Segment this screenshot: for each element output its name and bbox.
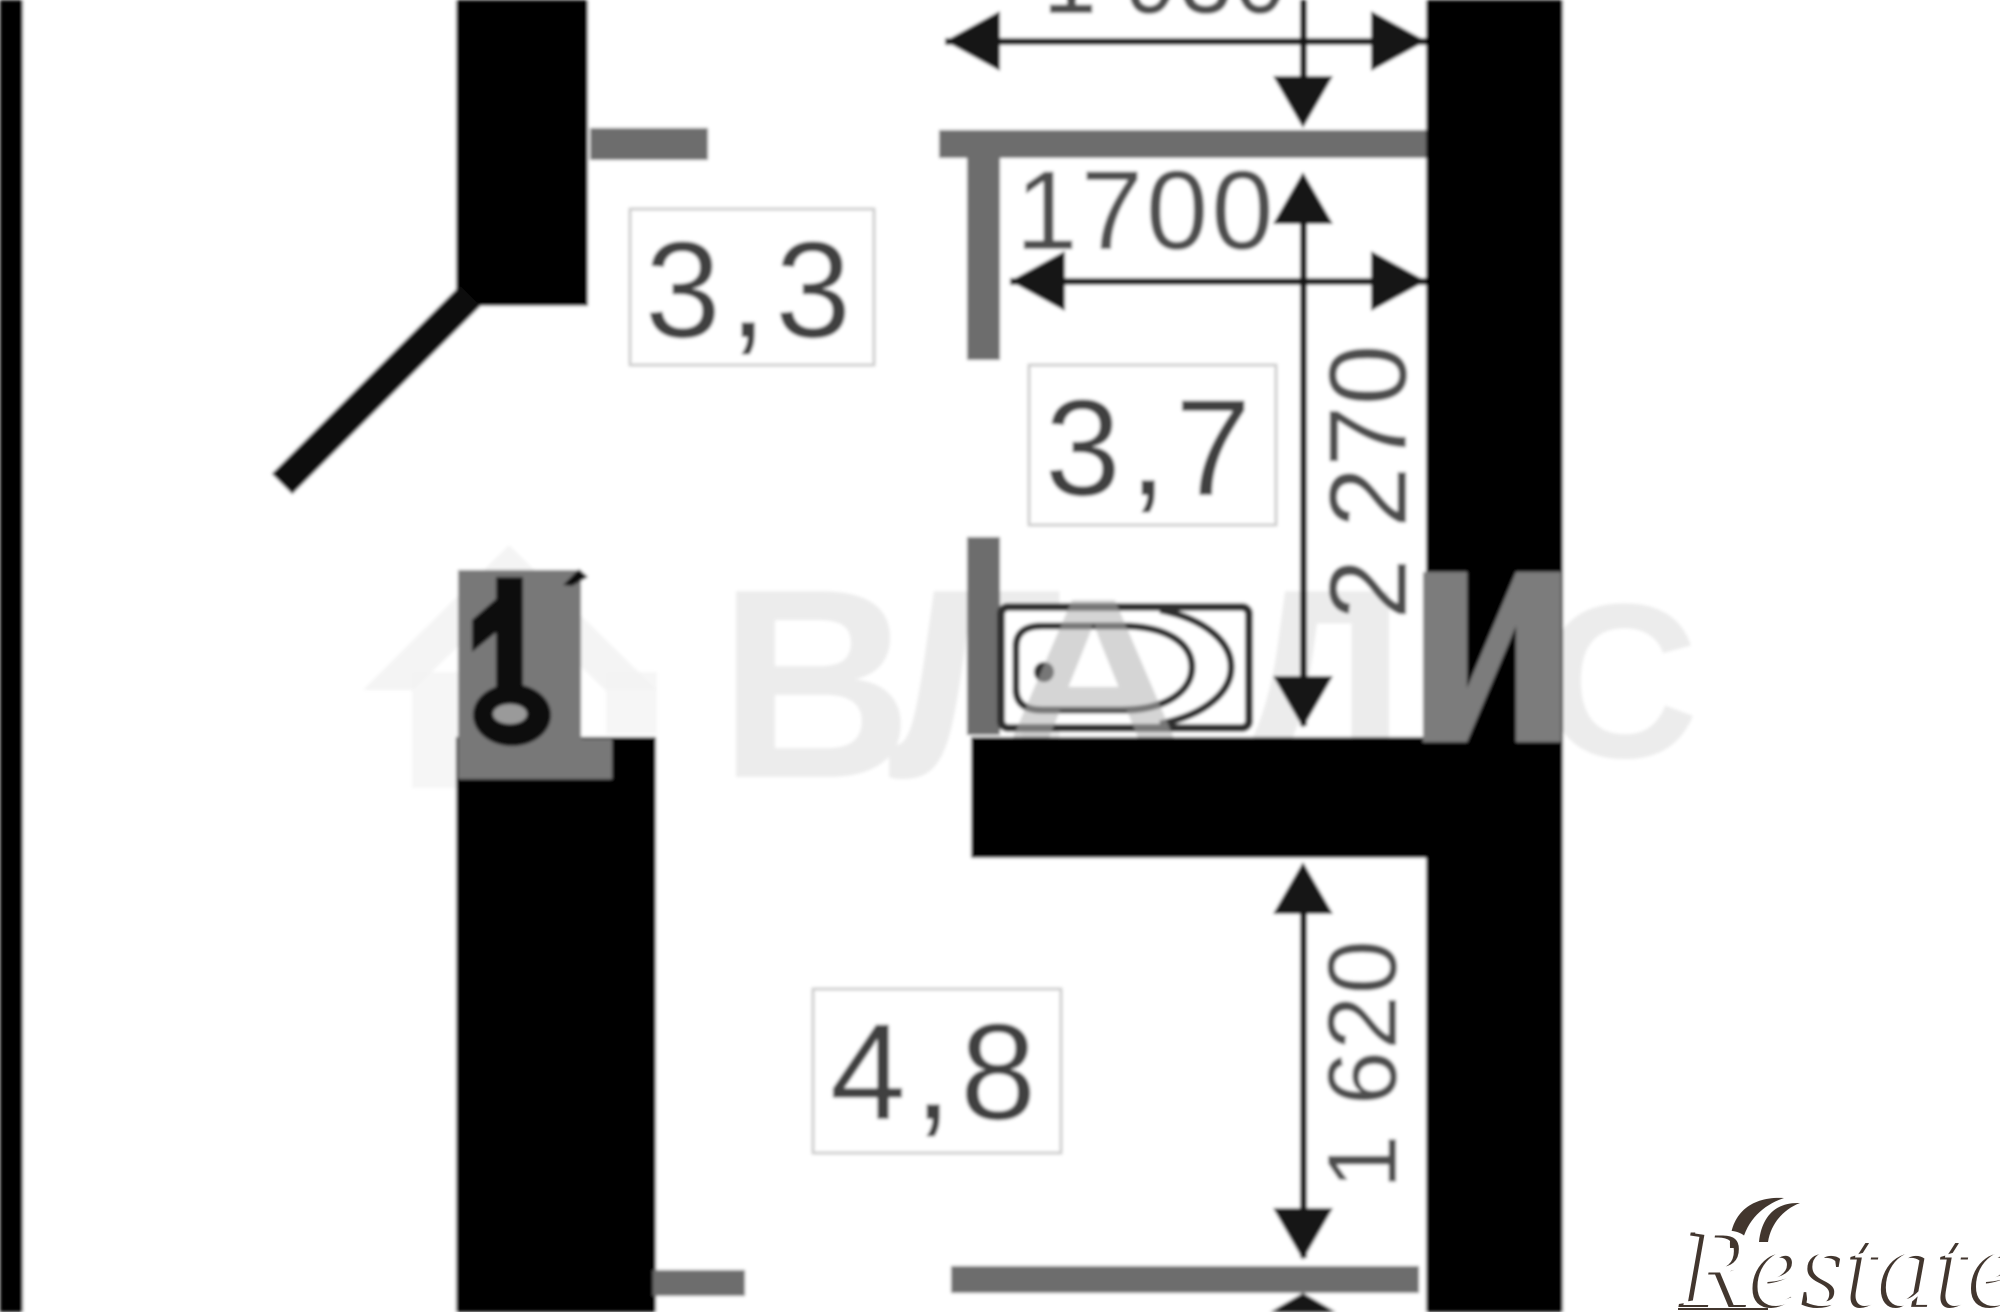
- svg-text:4,8: 4,8: [830, 996, 1044, 1149]
- svg-text:Restate: Restate: [1683, 1205, 2000, 1312]
- svg-text:1 930: 1 930: [1043, 0, 1288, 37]
- svg-text:1700: 1700: [1015, 148, 1276, 273]
- svg-text:В: В: [718, 534, 913, 835]
- svg-text:3,7: 3,7: [1045, 372, 1259, 525]
- svg-text:С: С: [1540, 558, 1699, 804]
- svg-text:1 620: 1 620: [1307, 939, 1417, 1189]
- svg-text:2 270: 2 270: [1307, 344, 1430, 619]
- svg-text:3,3: 3,3: [645, 214, 859, 367]
